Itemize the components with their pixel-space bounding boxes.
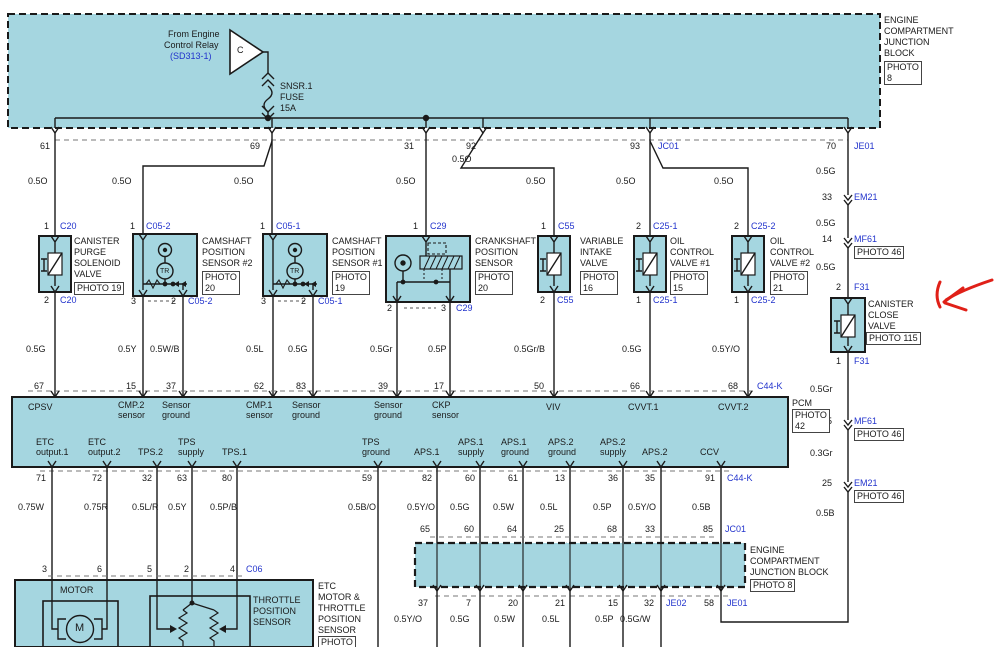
pin-number: 2 xyxy=(171,296,176,306)
photo-ref-line: PHOTO xyxy=(335,272,367,283)
wiring-diagram-canvas: From Engine Control Relay (SD313-1) C SN… xyxy=(0,0,1000,647)
pcm-port-label: TPS.1 xyxy=(222,447,247,457)
pin-number: 64 xyxy=(507,524,517,534)
connector-label: F31 xyxy=(854,356,870,366)
wire-color-label: 0.5W xyxy=(493,502,514,512)
component-name: THROTTLE xyxy=(253,595,301,605)
wire-color-label: 0.5L xyxy=(540,502,558,512)
junction-block-title: ENGINE xyxy=(750,545,785,555)
pin-number: 32 xyxy=(142,473,152,483)
wire-color-label: 0.75R xyxy=(84,502,108,512)
component-name: OIL xyxy=(670,236,685,246)
fuse-name: SNSR.1 xyxy=(280,81,313,91)
photo-ref-badge: PHOTO42 xyxy=(792,409,830,433)
photo-ref-line: 20 xyxy=(205,283,237,294)
connector-label: JE02 xyxy=(666,598,687,608)
component-name: CRANKSHAFT xyxy=(475,236,536,246)
pin-number: 50 xyxy=(534,381,544,391)
component-name: POSITION xyxy=(318,614,361,624)
pcm-port-label: Sensor xyxy=(292,400,321,410)
pin-number: 1 xyxy=(636,295,641,305)
pin-number: 31 xyxy=(404,141,414,151)
ecjb-title: JUNCTION xyxy=(884,37,930,47)
engine-compartment-junction-block-top xyxy=(8,14,880,128)
photo-ref-badge: PHOTO15 xyxy=(670,271,708,295)
pcm-port-label: CCV xyxy=(700,447,719,457)
pcm-port-label: CKP xyxy=(432,400,451,410)
photo-ref-line: 42 xyxy=(795,421,827,432)
connector-label: C05-2 xyxy=(188,296,213,306)
pin-number: 37 xyxy=(166,381,176,391)
pcm-port-label: supply xyxy=(600,447,626,457)
component-name: VALVE xyxy=(580,258,608,268)
pin-number: 14 xyxy=(822,234,832,244)
pin-number: 15 xyxy=(608,598,618,608)
component-name: CONTROL xyxy=(670,247,714,257)
component-name: CANISTER xyxy=(74,236,120,246)
pcm-port-label: CVVT.2 xyxy=(718,402,749,412)
pcm-port-label: APS.2 xyxy=(548,437,574,447)
pin-number: 15 xyxy=(126,381,136,391)
connector-label: JE01 xyxy=(854,141,875,151)
pcm-port-label: ground xyxy=(374,410,402,420)
connector-label: C29 xyxy=(456,303,473,313)
pin-number: 25 xyxy=(554,524,564,534)
component-name: CLOSE xyxy=(868,310,899,320)
wire-color-label: 0.5Y/O xyxy=(712,344,740,354)
photo-ref-badge: PHOTO19 xyxy=(332,271,370,295)
photo-ref-line: 20 xyxy=(478,283,510,294)
pin-number: 21 xyxy=(555,598,565,608)
component-name: SENSOR #2 xyxy=(202,258,253,268)
wire-color-label: 0.5P xyxy=(593,502,612,512)
photo-ref-badge: PHOTO16 xyxy=(580,271,618,295)
wire-color-label: 0.5G xyxy=(622,344,642,354)
pin-number: 33 xyxy=(822,192,832,202)
connector-label: C05-1 xyxy=(276,221,301,231)
pin-number: 2 xyxy=(540,295,545,305)
pcm-port-label: TPS xyxy=(362,437,380,447)
wire-color-label: 0.5P xyxy=(428,344,447,354)
wire-color-label: 0.5B xyxy=(692,502,711,512)
pin-number: 69 xyxy=(250,141,260,151)
photo-ref-line: 8 xyxy=(887,73,919,84)
component-name: CAMSHAFT xyxy=(202,236,252,246)
pin-number: 1 xyxy=(734,295,739,305)
pcm-port-label: ground xyxy=(362,447,390,457)
pin-number: 70 xyxy=(826,141,836,151)
pin-number: 80 xyxy=(222,473,232,483)
wire-color-label: 0.5O xyxy=(396,176,416,186)
pin-number: 60 xyxy=(464,524,474,534)
wire-color-label: 0.5G/W xyxy=(620,614,651,624)
photo-ref-line: 19 xyxy=(335,283,367,294)
pin-number: 7 xyxy=(466,598,471,608)
wire-color-label: 0.3Gr xyxy=(810,448,833,458)
pcm-port-label: APS.2 xyxy=(600,437,626,447)
connector-label: C55 xyxy=(558,221,575,231)
wire-color-label: 0.5Y/O xyxy=(628,502,656,512)
component-name: THROTTLE xyxy=(318,603,366,613)
photo-ref-badge: PHOTO20 xyxy=(475,271,513,295)
connector-label: C25-1 xyxy=(653,295,678,305)
component-name: INTAKE xyxy=(580,247,612,257)
photo-ref-badge: PHOTO 115 xyxy=(866,332,921,345)
pin-number: 3 xyxy=(441,303,446,313)
connector-label: C20 xyxy=(60,295,77,305)
pin-number: 2 xyxy=(387,303,392,313)
pcm-port-label: Sensor xyxy=(162,400,191,410)
photo-ref-line: PHOTO xyxy=(887,62,919,73)
motor-symbol-letter: M xyxy=(75,622,84,634)
connector-label: JC01 xyxy=(658,141,679,151)
photo-ref-badge: PHOTO8 xyxy=(884,61,922,85)
wire-color-label: 0.75W xyxy=(18,502,44,512)
pin-number: 1 xyxy=(44,221,49,231)
connector-label: C29 xyxy=(430,221,447,231)
pin-number: 3 xyxy=(131,296,136,306)
wire-color-label: 0.5P/B xyxy=(210,502,237,512)
pin-number: 71 xyxy=(36,473,46,483)
pin-number: 2 xyxy=(184,564,189,574)
pin-number: 25 xyxy=(822,478,832,488)
connector-label: C44-K xyxy=(727,473,753,483)
connector-label: C20 xyxy=(60,221,77,231)
pin-number: 58 xyxy=(704,598,714,608)
wire-color-label: 0.5G xyxy=(288,344,308,354)
motor-label: MOTOR xyxy=(60,585,93,595)
wire-color-label: 0.5O xyxy=(112,176,132,186)
component-name: SENSOR xyxy=(318,625,356,635)
pin-number: 35 xyxy=(645,473,655,483)
component-name: OIL xyxy=(770,236,785,246)
pin-number: 65 xyxy=(420,524,430,534)
pin-number: 6 xyxy=(97,564,102,574)
ecjb-title: COMPARTMENT xyxy=(884,26,954,36)
wire-color-label: 0.5O xyxy=(616,176,636,186)
component-name: VARIABLE xyxy=(580,236,623,246)
pin-number: 93 xyxy=(630,141,640,151)
pin-number: 3 xyxy=(261,296,266,306)
pcm-port-label: output.2 xyxy=(88,447,121,457)
component-name: SENSOR xyxy=(253,617,291,627)
component-name: VALVE #2 xyxy=(770,258,810,268)
wire-color-label: 0.5Y/O xyxy=(394,614,422,624)
connector-label: C06 xyxy=(246,564,263,574)
pin-number: 3 xyxy=(42,564,47,574)
connector-label: C25-1 xyxy=(653,221,678,231)
pcm-port-label: TPS.2 xyxy=(138,447,163,457)
pin-number: 68 xyxy=(728,381,738,391)
wire-color-label: 0.5G xyxy=(450,614,470,624)
pcm-port-label: TPS xyxy=(178,437,196,447)
connector-label: MF61 xyxy=(854,234,877,244)
junction-block-title: COMPARTMENT xyxy=(750,556,820,566)
connector-label: JE01 xyxy=(727,598,748,608)
component-name: SOLENOID xyxy=(74,258,121,268)
pcm-port-label: VIV xyxy=(546,402,561,412)
pin-number: 68 xyxy=(607,524,617,534)
pin-number: 39 xyxy=(378,381,388,391)
pcm-port-label: sensor xyxy=(246,410,273,420)
connector-label: C25-2 xyxy=(751,295,776,305)
photo-ref-badge: PHOTO 46 xyxy=(854,246,904,259)
connector-label: EM21 xyxy=(854,478,878,488)
photo-ref-badge: PHOTO 19 xyxy=(74,282,124,295)
ecjb-title: ENGINE xyxy=(884,15,919,25)
tr-symbol-label: TR xyxy=(290,268,299,276)
photo-ref-badge: PHOTO 46 xyxy=(854,490,904,503)
pcm-port-label: supply xyxy=(178,447,204,457)
photo-ref-line: PHOTO xyxy=(478,272,510,283)
photo-ref-line: PHOTO xyxy=(583,272,615,283)
connector-label: F31 xyxy=(854,282,870,292)
pin-number: 61 xyxy=(508,473,518,483)
photo-ref-badge: PHOTO 46 xyxy=(854,428,904,441)
component-name: PURGE xyxy=(74,247,106,257)
pcm-port-label: CMP.1 xyxy=(246,400,272,410)
pin-number: 61 xyxy=(40,141,50,151)
ecjb-title: BLOCK xyxy=(884,48,915,58)
pcm-port-label: APS.2 xyxy=(642,447,668,457)
component-name: CONTROL xyxy=(770,247,814,257)
relay-label: Control Relay xyxy=(164,40,219,50)
photo-ref-line: PHOTO xyxy=(773,272,805,283)
component-name: ETC xyxy=(318,581,336,591)
photo-ref-line: 21 xyxy=(773,283,805,294)
pin-number: 36 xyxy=(608,473,618,483)
component-name: CAMSHAFT xyxy=(332,236,382,246)
pin-number: 67 xyxy=(34,381,44,391)
connector-label: EM21 xyxy=(854,192,878,202)
pin-number: 1 xyxy=(260,221,265,231)
connector-label: C55 xyxy=(557,295,574,305)
pcm-port-label: output.1 xyxy=(36,447,69,457)
photo-ref-line: PHOTO xyxy=(205,272,237,283)
wire-color-label: 0.5O xyxy=(714,176,734,186)
pin-number: 83 xyxy=(296,381,306,391)
wire-color-label: 0.5W xyxy=(494,614,515,624)
fuse-rating: 15A xyxy=(280,103,296,113)
component-name: SENSOR xyxy=(475,258,513,268)
wire-color-label: 0.5Y xyxy=(118,344,137,354)
pin-number: 32 xyxy=(644,598,654,608)
pin-number: 2 xyxy=(734,221,739,231)
pcm-port-label: ground xyxy=(292,410,320,420)
junction-block-title: JUNCTION BLOCK xyxy=(750,567,829,577)
pcm-port-label: APS.1 xyxy=(458,437,484,447)
fuse-type: FUSE xyxy=(280,92,304,102)
wire-color-label: 0.5Gr/B xyxy=(514,344,545,354)
pin-number: 60 xyxy=(465,473,475,483)
wire-color-label: 0.5Gr xyxy=(370,344,393,354)
component-name: VALVE xyxy=(868,321,896,331)
wire-color-label: 0.5W/B xyxy=(150,344,180,354)
pcm-port-label: ETC xyxy=(36,437,54,447)
photo-ref-line: PHOTO xyxy=(795,410,827,421)
pin-number: 1 xyxy=(541,221,546,231)
component-name: CANISTER xyxy=(868,299,914,309)
tr-symbol-label: TR xyxy=(160,268,169,276)
pcm-port-label: supply xyxy=(458,447,484,457)
pin-number: 17 xyxy=(434,381,444,391)
wire-color-label: 0.5Y xyxy=(168,502,187,512)
red-annotation-arrow xyxy=(937,280,992,310)
pin-number: 66 xyxy=(630,381,640,391)
pin-number: 59 xyxy=(362,473,372,483)
pin-number: 63 xyxy=(177,473,187,483)
connector-label: C44-K xyxy=(757,381,783,391)
component-name: MOTOR & xyxy=(318,592,360,602)
pin-number: 5 xyxy=(147,564,152,574)
pin-number: 72 xyxy=(92,473,102,483)
component-name: VALVE xyxy=(74,269,102,279)
pcm-port-label: ground xyxy=(162,410,190,420)
pcm-port-label: CPSV xyxy=(28,402,53,412)
connector-label: C05-2 xyxy=(146,221,171,231)
pin-number: 91 xyxy=(705,473,715,483)
wire-color-label: 0.5Gr xyxy=(810,384,833,394)
component-name: POSITION xyxy=(332,247,375,257)
connector-label: MF61 xyxy=(854,416,877,426)
pcm-port-label: CVVT.1 xyxy=(628,402,659,412)
wiring-svg xyxy=(0,0,1000,647)
pcm-port-label: sensor xyxy=(432,410,459,420)
wire-color-label: 0.5B xyxy=(816,508,835,518)
pin-number: 2 xyxy=(836,282,841,292)
engine-compartment-junction-block-mid xyxy=(415,543,745,587)
component-name: SENSOR #1 xyxy=(332,258,383,268)
pin-number: 33 xyxy=(645,524,655,534)
wire-color-label: 0.5G xyxy=(450,502,470,512)
pcm-port-label: APS.1 xyxy=(414,447,440,457)
photo-ref-badge: PHOTO 8 xyxy=(750,579,795,592)
pcm-port-label: CMP.2 xyxy=(118,400,144,410)
component-name: POSITION xyxy=(253,606,296,616)
pin-number: 1 xyxy=(413,221,418,231)
component-name: POSITION xyxy=(202,247,245,257)
wire-color-label: 0.5G xyxy=(26,344,46,354)
pin-number: 13 xyxy=(555,473,565,483)
pin-number: 1 xyxy=(836,356,841,366)
photo-ref-badge: PHOTO21 xyxy=(770,271,808,295)
wire-color-label: 0.5O xyxy=(28,176,48,186)
component-name: POSITION xyxy=(475,247,518,257)
pin-number: 62 xyxy=(254,381,264,391)
photo-ref-line: PHOTO xyxy=(673,272,705,283)
wire-color-label: 0.5G xyxy=(816,262,836,272)
wire-color-label: 0.5G xyxy=(816,166,836,176)
pin-number: 2 xyxy=(44,295,49,305)
connector-label: C25-2 xyxy=(751,221,776,231)
photo-ref-badge: PHOTO xyxy=(318,636,356,647)
pin-number: 4 xyxy=(230,564,235,574)
relay-letter: C xyxy=(237,45,244,55)
pin-number: 2 xyxy=(636,221,641,231)
pin-number: 20 xyxy=(508,598,518,608)
pin-number: 37 xyxy=(418,598,428,608)
pin-number: 2 xyxy=(301,296,306,306)
wire-color-label: 0.5Y/O xyxy=(407,502,435,512)
wire-color-label: 0.5O xyxy=(452,154,472,164)
relay-reference: (SD313-1) xyxy=(170,51,212,61)
wire-color-label: 0.5O xyxy=(234,176,254,186)
pin-number: 82 xyxy=(422,473,432,483)
pin-number: 1 xyxy=(130,221,135,231)
photo-ref-line: 15 xyxy=(673,283,705,294)
pcm-port-label: ETC xyxy=(88,437,106,447)
wire-color-label: 0.5G xyxy=(816,218,836,228)
wire-color-label: 0.5O xyxy=(526,176,546,186)
pcm-port-label: sensor xyxy=(118,410,145,420)
wire-color-label: 0.5L xyxy=(246,344,264,354)
relay-label: From Engine xyxy=(168,29,220,39)
photo-ref-line: 16 xyxy=(583,283,615,294)
wire-color-label: 0.5L/R xyxy=(132,502,159,512)
wire-color-label: 0.5P xyxy=(595,614,614,624)
pcm-port-label: ground xyxy=(501,447,529,457)
pcm-port-label: Sensor xyxy=(374,400,403,410)
wire-color-label: 0.5B/O xyxy=(348,502,376,512)
pcm-port-label: ground xyxy=(548,447,576,457)
connector-label: C05-1 xyxy=(318,296,343,306)
photo-ref-badge: PHOTO20 xyxy=(202,271,240,295)
pcm-title: PCM xyxy=(792,398,812,408)
pin-number: 92 xyxy=(466,141,476,151)
wire-color-label: 0.5L xyxy=(542,614,560,624)
pcm-port-label: APS.1 xyxy=(501,437,527,447)
connector-label: JC01 xyxy=(725,524,746,534)
component-name: VALVE #1 xyxy=(670,258,710,268)
pin-number: 85 xyxy=(703,524,713,534)
